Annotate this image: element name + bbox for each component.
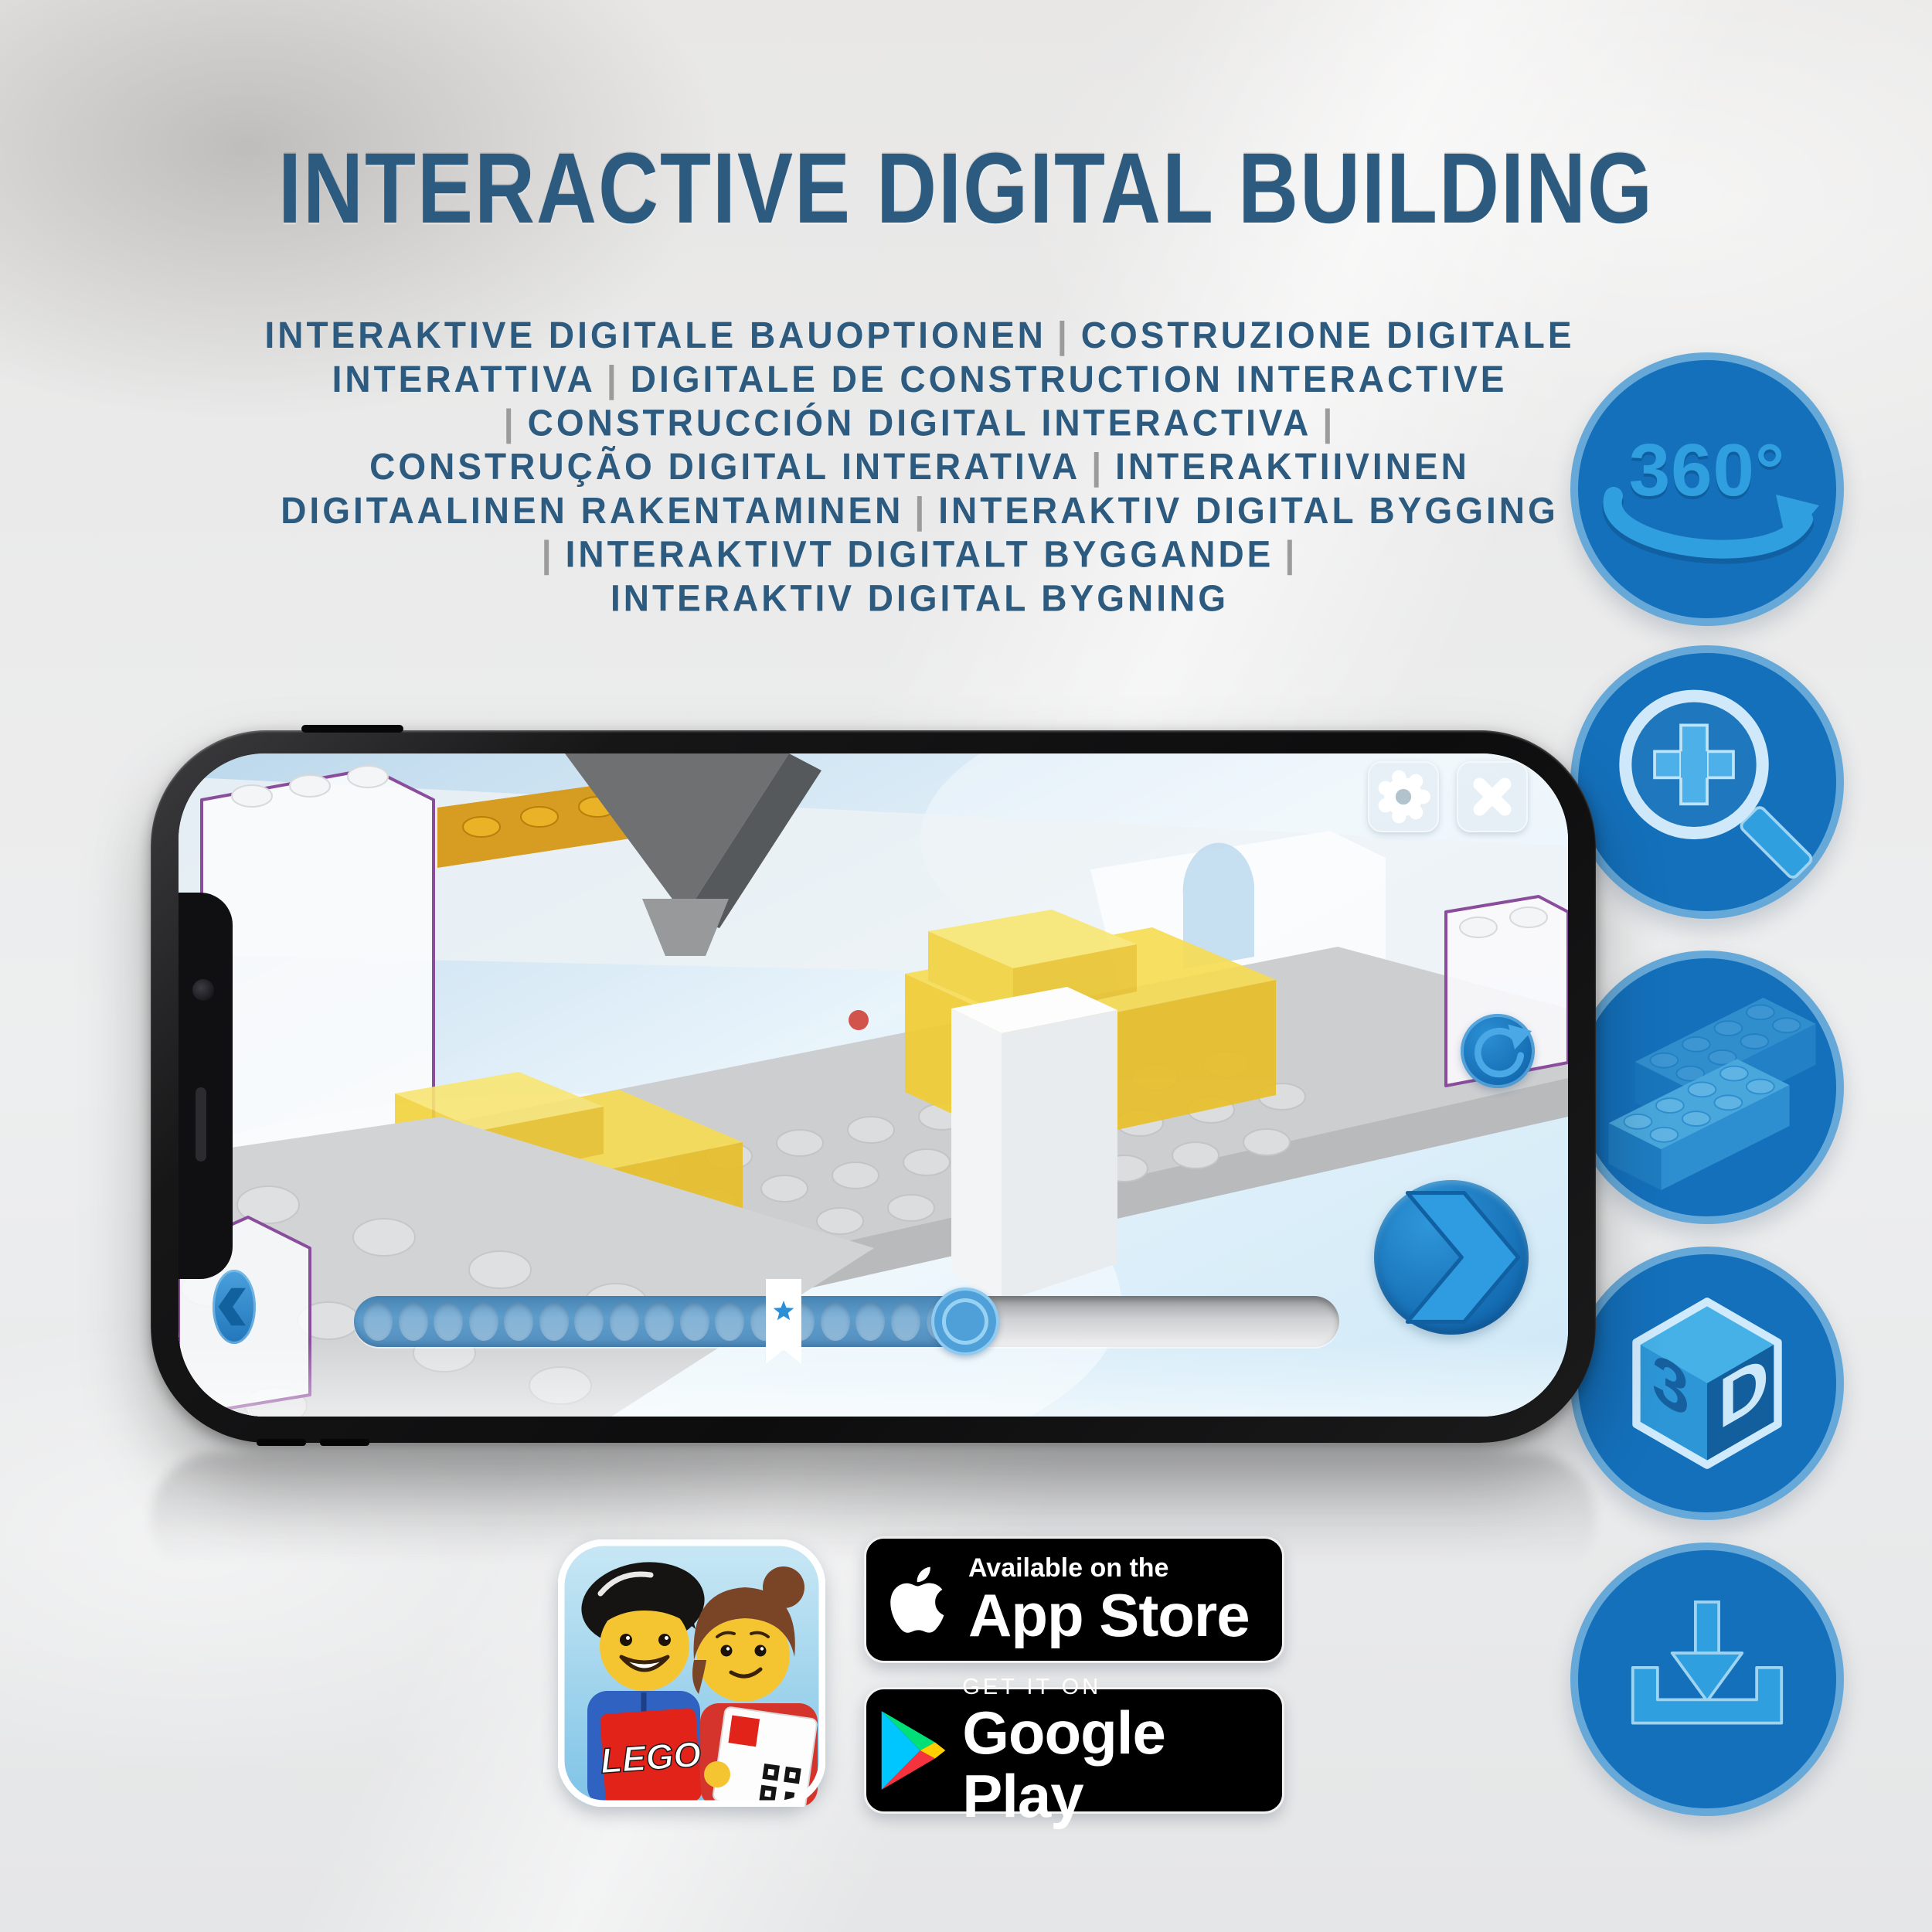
progress-dot bbox=[469, 1302, 498, 1341]
page-title: INTERACTIVE DIGITAL BUILDING bbox=[0, 130, 1932, 246]
close-icon bbox=[1457, 761, 1528, 832]
subtitle-line: INTERAKTIVE DIGITALE BAUOPTIONEN|COSTRUZ… bbox=[0, 313, 1839, 357]
progress-dot bbox=[645, 1302, 674, 1341]
rotate-arrow-icon bbox=[1461, 1014, 1535, 1088]
separator: | bbox=[493, 401, 528, 444]
separator: | bbox=[1274, 533, 1308, 576]
progress-fill bbox=[354, 1296, 965, 1347]
separator: | bbox=[903, 489, 938, 532]
progress-dots bbox=[363, 1301, 956, 1342]
separator: | bbox=[1046, 314, 1081, 356]
app-store-title: App Store bbox=[968, 1583, 1250, 1647]
app-store-tagline: Available on the bbox=[968, 1553, 1250, 1583]
next-step-button[interactable] bbox=[1374, 1180, 1529, 1335]
subtitle-line: CONSTRUÇÃO DIGITAL INTERATIVA|INTERAKTII… bbox=[0, 444, 1839, 488]
separator: | bbox=[531, 533, 566, 576]
lego-app-icon[interactable]: LEGO bbox=[558, 1539, 825, 1807]
progress-dot bbox=[574, 1302, 604, 1341]
subtitle-line: INTERATTIVA|DIGITALE DE CONSTRUCTION INT… bbox=[0, 357, 1839, 401]
progress-dot bbox=[610, 1302, 639, 1341]
close-button[interactable] bbox=[1457, 761, 1528, 832]
progress-dot bbox=[891, 1302, 920, 1341]
rotate-swoosh-arrow-icon bbox=[1597, 487, 1822, 581]
subtitle-line: |CONSTRUCCIÓN DIGITAL INTERACTIVA| bbox=[0, 400, 1839, 444]
subtitle-line: DIGITAALINEN RAKENTAMINEN|INTERAKTIV DIG… bbox=[0, 488, 1839, 532]
slider-knob[interactable] bbox=[931, 1287, 999, 1355]
settings-button[interactable] bbox=[1368, 761, 1439, 832]
phone-notch bbox=[179, 893, 233, 1279]
progress-dot bbox=[821, 1302, 850, 1341]
lego-bricks-icon bbox=[1578, 958, 1836, 1216]
progress-dot bbox=[680, 1302, 709, 1341]
progress-dot bbox=[504, 1302, 533, 1341]
chevron-right-icon bbox=[1374, 1180, 1529, 1335]
rotate-view-button[interactable] bbox=[1461, 1014, 1535, 1088]
subtitle-line: INTERAKTIV DIGITAL BYGNING bbox=[0, 576, 1839, 620]
progress-dot bbox=[715, 1302, 744, 1341]
app-store-badge[interactable]: Available on the App Store bbox=[864, 1536, 1284, 1663]
zoom-in-magnifier-icon bbox=[1578, 653, 1836, 911]
phone-side-button bbox=[301, 725, 403, 733]
google-play-badge[interactable]: GET IT ON Google Play bbox=[864, 1687, 1284, 1814]
phone-screen bbox=[179, 753, 1568, 1417]
google-play-title: Google Play bbox=[962, 1701, 1282, 1828]
chevron-left-icon bbox=[213, 1270, 256, 1344]
subtitle-line: |INTERAKTIVT DIGITALT BYGGANDE| bbox=[0, 532, 1839, 577]
progress-dot bbox=[539, 1302, 569, 1341]
separator: | bbox=[596, 358, 631, 400]
feature-3d-badge: 3 D bbox=[1570, 1247, 1844, 1520]
google-play-icon bbox=[877, 1709, 951, 1791]
feature-zoom-badge bbox=[1570, 645, 1844, 919]
progress-dot bbox=[434, 1302, 463, 1341]
gear-icon bbox=[1368, 761, 1439, 832]
progress-dot bbox=[363, 1302, 393, 1341]
progress-dot bbox=[855, 1302, 885, 1341]
subtitle: INTERAKTIVE DIGITALE BAUOPTIONEN|COSTRUZ… bbox=[0, 313, 1839, 620]
progress-dot bbox=[399, 1302, 428, 1341]
phone-volume-button bbox=[257, 1439, 306, 1446]
download-icon bbox=[1578, 1550, 1836, 1808]
earpiece-speaker bbox=[196, 1087, 206, 1162]
separator: | bbox=[1080, 445, 1115, 488]
lego-app-icon-art: LEGO bbox=[558, 1539, 825, 1807]
3d-cube-icon: 3 D bbox=[1578, 1254, 1836, 1512]
poster: INTERACTIVE DIGITAL BUILDING INTERAKTIVE… bbox=[0, 0, 1932, 1932]
step-progress-slider[interactable] bbox=[354, 1296, 1339, 1347]
phone-volume-button bbox=[320, 1439, 369, 1446]
front-camera bbox=[192, 979, 214, 1001]
previous-step-button[interactable] bbox=[213, 1270, 256, 1344]
separator: | bbox=[1311, 401, 1346, 444]
google-play-tagline: GET IT ON bbox=[962, 1673, 1282, 1701]
apple-icon bbox=[889, 1565, 946, 1634]
feature-360-badge: 360° bbox=[1570, 352, 1844, 626]
feature-brick-badge bbox=[1570, 951, 1844, 1224]
star-icon bbox=[771, 1299, 796, 1324]
svg-text:LEGO: LEGO bbox=[599, 1734, 702, 1781]
phone-mockup bbox=[151, 730, 1596, 1443]
feature-download-badge bbox=[1570, 1543, 1844, 1816]
